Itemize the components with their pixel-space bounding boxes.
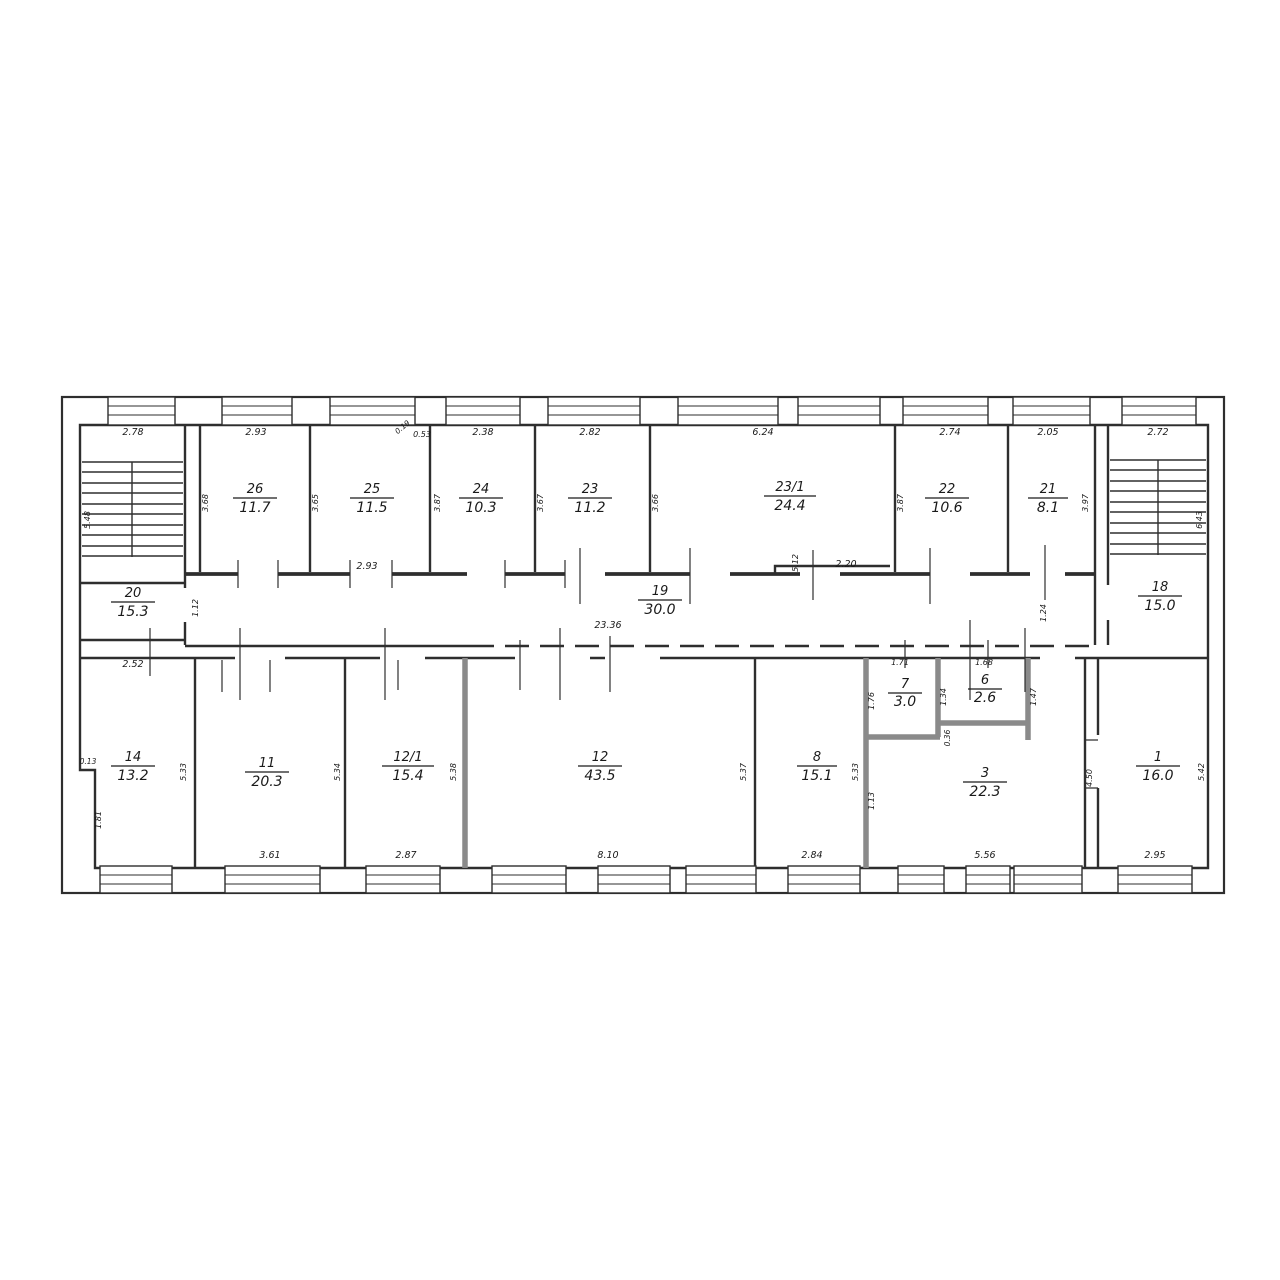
room-number: 20: [125, 586, 142, 601]
dim-label: 5.12: [791, 554, 800, 572]
window: [366, 866, 440, 893]
window: [1013, 397, 1090, 425]
room-number: 8: [813, 750, 821, 765]
room-area: 2.6: [974, 690, 996, 706]
room-number: 26: [247, 482, 264, 497]
dim-label: 1.12: [191, 599, 200, 617]
window: [598, 866, 670, 893]
room-number: 11: [259, 756, 276, 771]
dim-label: 6.43: [1195, 511, 1204, 529]
room-area: 24.4: [774, 498, 805, 514]
dim-label: 3.65: [311, 494, 320, 512]
dim-label: 1.24: [1039, 604, 1048, 622]
window: [1122, 397, 1196, 425]
window: [966, 866, 1010, 893]
dim-label: 5.42: [1197, 763, 1206, 781]
dim-label: 2.05: [1037, 427, 1058, 438]
dim-label: 1.13: [867, 792, 876, 810]
room-area: 20.3: [251, 774, 282, 790]
dim-label: 3.67: [536, 493, 545, 512]
dim-label: 1.71: [891, 658, 909, 667]
room-area: 15.0: [1144, 598, 1175, 614]
dim-label: 1.68: [975, 658, 993, 667]
room-number: 3: [981, 766, 989, 781]
dim-label: 5.34: [333, 763, 342, 781]
room-number: 22: [939, 482, 956, 497]
dim-label: 0.53: [413, 430, 431, 439]
dim-label: 2.95: [1144, 850, 1165, 861]
dim-label: 1.76: [867, 692, 876, 710]
dim-label: 3.66: [651, 494, 660, 512]
dim-label: 1.47: [1029, 687, 1038, 706]
dim-label: 2.52: [122, 659, 143, 670]
dim-label: 4.50: [1085, 769, 1094, 787]
dim-label: 1.34: [939, 688, 948, 706]
dim-label: 3.87: [433, 493, 442, 512]
dim-label: 2.74: [939, 427, 960, 438]
window: [898, 866, 944, 893]
room-number: 25: [364, 482, 381, 497]
dim-label: 5.33: [851, 763, 860, 781]
dim-label: 2.84: [801, 850, 822, 861]
room-area: 22.3: [969, 784, 1000, 800]
room-number: 14: [125, 750, 142, 765]
window: [1118, 866, 1192, 893]
room-number: 23/1: [775, 480, 804, 495]
dim-label: 2.87: [395, 850, 416, 861]
window: [446, 397, 520, 425]
room-area: 13.2: [117, 768, 148, 784]
dim-label: 5.37: [739, 762, 748, 781]
window: [548, 397, 640, 425]
room-area: 15.3: [117, 604, 148, 620]
room-area: 11.7: [239, 500, 270, 516]
room-number: 12: [592, 750, 609, 765]
room-number: 18: [1152, 580, 1169, 595]
dim-label: 5.38: [449, 763, 458, 781]
window: [225, 866, 320, 893]
room-number: 21: [1040, 482, 1057, 497]
room-number: 24: [473, 482, 490, 497]
room-number: 1: [1154, 750, 1162, 765]
floor-plan-canvas: Avito: [0, 0, 1280, 1280]
room-area: 10.6: [931, 500, 962, 516]
room-area: 8.1: [1037, 500, 1059, 516]
dim-label: 0.36: [943, 729, 952, 746]
window: [108, 397, 175, 425]
dim-label: 1.81: [94, 811, 103, 829]
dim-label: 3.97: [1081, 493, 1090, 512]
room-area: 10.3: [465, 500, 496, 516]
dim-label: 2.20: [835, 559, 856, 570]
dim-label: 3.87: [896, 493, 905, 512]
dim-label: 6.24: [752, 427, 773, 438]
room-number: 6: [981, 673, 989, 688]
room-area: 11.2: [574, 500, 605, 516]
dim-label: 2.72: [1147, 427, 1168, 438]
window: [788, 866, 860, 893]
window: [678, 397, 778, 425]
room-number: 23: [582, 482, 599, 497]
room-area: 16.0: [1142, 768, 1173, 784]
dim-label: 0.13: [80, 757, 97, 766]
window: [686, 866, 756, 893]
dim-label: 5.56: [974, 850, 995, 861]
window: [798, 397, 880, 425]
room-area: 11.5: [356, 500, 387, 516]
window: [100, 866, 172, 893]
room-area: 43.5: [584, 768, 615, 784]
dim-label: 23.36: [594, 620, 621, 631]
dim-label: 8.10: [597, 850, 618, 861]
room-number: 19: [652, 584, 669, 599]
window: [1014, 866, 1082, 893]
dim-label: 3.68: [201, 494, 210, 512]
window: [492, 866, 566, 893]
dim-label: 2.93: [245, 427, 266, 438]
room-area: 3.0: [894, 694, 916, 710]
dim-label: 2.78: [122, 427, 143, 438]
dim-label: 5.48: [83, 511, 92, 529]
room-number: 7: [901, 677, 910, 692]
dim-label: 2.38: [472, 427, 493, 438]
dim-label: 2.93: [356, 561, 377, 572]
room-area: 30.0: [644, 602, 675, 618]
windows-bottom: [100, 866, 1192, 893]
dim-label: 3.61: [259, 850, 280, 861]
window: [222, 397, 292, 425]
room-area: 15.1: [801, 768, 832, 784]
dim-label: 2.82: [579, 427, 600, 438]
room-area: 15.4: [392, 768, 423, 784]
window: [903, 397, 988, 425]
room-number: 12/1: [393, 750, 422, 765]
dim-label: 5.33: [179, 763, 188, 781]
